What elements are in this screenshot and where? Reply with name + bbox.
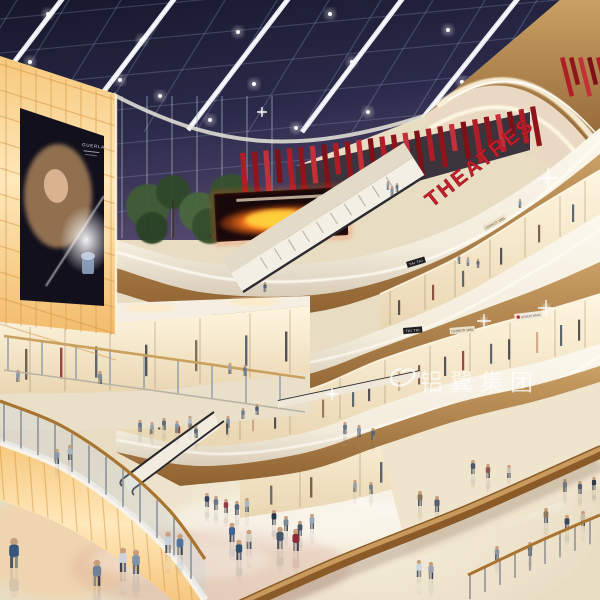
mall-atrium-rendering: THEATRES TAI TAI CERRUTI 1881 TAI TAI CE…: [0, 0, 600, 600]
watermark-text: 铝翼集团: [420, 369, 540, 395]
red-logo-mark: [517, 315, 520, 318]
scene-canvas: THEATRES TAI TAI CERRUTI 1881 TAI TAI CE…: [0, 0, 600, 600]
